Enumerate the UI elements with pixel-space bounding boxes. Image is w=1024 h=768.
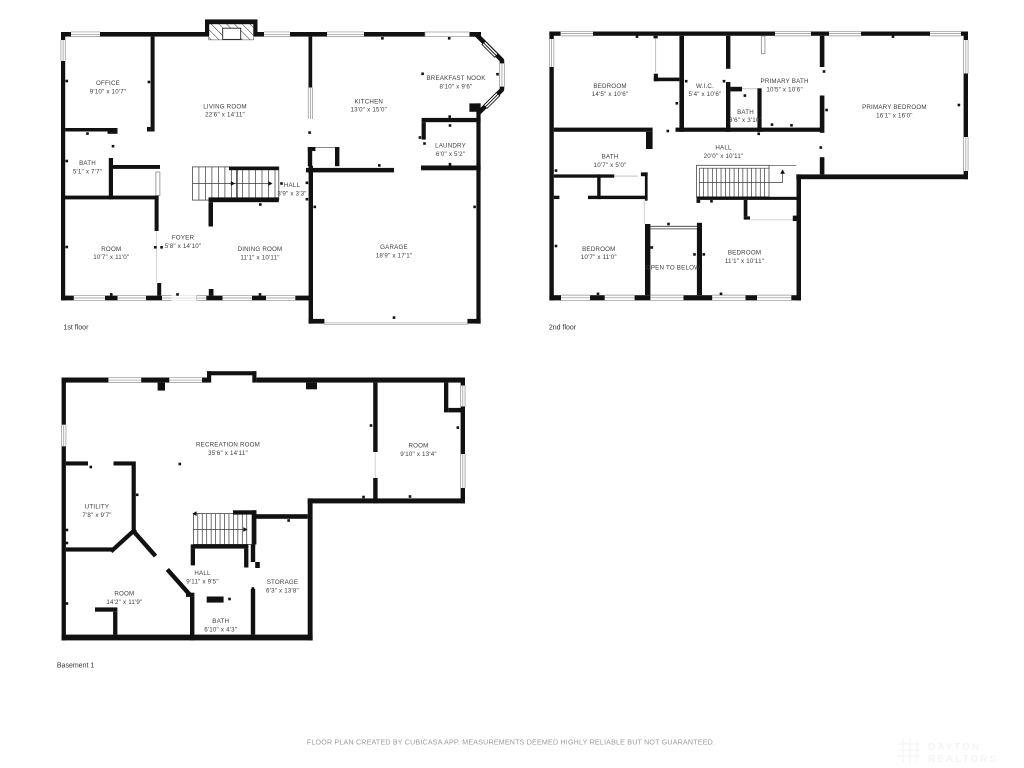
svg-text:FLOOR PLAN CREATED BY CUBICASA: FLOOR PLAN CREATED BY CUBICASA APP. MEAS… bbox=[307, 739, 715, 747]
svg-text:KITCHEN: KITCHEN bbox=[355, 98, 384, 105]
svg-text:ROOM: ROOM bbox=[408, 442, 428, 449]
svg-text:11'1" x 10'11": 11'1" x 10'11" bbox=[725, 258, 764, 265]
svg-text:HALL: HALL bbox=[284, 182, 301, 189]
svg-text:FOYER: FOYER bbox=[172, 234, 195, 241]
svg-text:STORAGE: STORAGE bbox=[267, 579, 299, 586]
svg-text:LIVING ROOM: LIVING ROOM bbox=[203, 103, 246, 110]
svg-text:7'8" x 9'7": 7'8" x 9'7" bbox=[82, 512, 111, 519]
svg-text:18'9" x 17'1": 18'9" x 17'1" bbox=[376, 253, 413, 260]
svg-text:PRIMARY BATH: PRIMARY BATH bbox=[761, 78, 809, 85]
svg-text:PRIMARY BEDROOM: PRIMARY BEDROOM bbox=[862, 104, 927, 111]
svg-text:3'9" x 3'3": 3'9" x 3'3" bbox=[277, 191, 306, 198]
svg-text:9'10" x 13'4": 9'10" x 13'4" bbox=[400, 451, 437, 458]
svg-text:6'0" x 5'2": 6'0" x 5'2" bbox=[436, 151, 465, 158]
svg-text:W.I.C.: W.I.C. bbox=[696, 83, 714, 90]
svg-text:BATH: BATH bbox=[79, 160, 96, 167]
svg-text:10'7" x 11'0": 10'7" x 11'0" bbox=[581, 254, 617, 261]
svg-text:14'2" x 11'9": 14'2" x 11'9" bbox=[106, 599, 142, 606]
svg-text:BEDROOM: BEDROOM bbox=[582, 246, 615, 253]
svg-text:11'1" x 10'11": 11'1" x 10'11" bbox=[240, 254, 279, 261]
svg-text:10'7" x 11'0": 10'7" x 11'0" bbox=[93, 254, 129, 261]
svg-text:OFFICE: OFFICE bbox=[96, 80, 120, 87]
svg-text:BATH: BATH bbox=[602, 153, 619, 160]
svg-text:9'11" x 9'5": 9'11" x 9'5" bbox=[186, 579, 218, 586]
svg-text:13'0" x 15'0": 13'0" x 15'0" bbox=[351, 107, 388, 114]
svg-text:14'5" x 10'6": 14'5" x 10'6" bbox=[592, 91, 629, 98]
svg-text:5'4" x 10'6": 5'4" x 10'6" bbox=[689, 91, 722, 98]
svg-text:BEDROOM: BEDROOM bbox=[728, 249, 761, 256]
svg-text:BATH: BATH bbox=[737, 109, 754, 116]
svg-text:22'6" x 14'11": 22'6" x 14'11" bbox=[205, 112, 245, 119]
svg-text:BEDROOM: BEDROOM bbox=[593, 83, 626, 90]
svg-text:HALL: HALL bbox=[715, 144, 732, 151]
svg-text:OPEN TO BELOW: OPEN TO BELOW bbox=[646, 264, 700, 271]
svg-text:DAYTON: DAYTON bbox=[928, 742, 981, 753]
svg-text:RECREATION ROOM: RECREATION ROOM bbox=[196, 442, 260, 449]
svg-text:BATH: BATH bbox=[212, 618, 229, 625]
svg-text:ROOM: ROOM bbox=[114, 590, 134, 597]
svg-text:8'10" x 9'6": 8'10" x 9'6" bbox=[440, 83, 473, 90]
svg-text:2nd floor: 2nd floor bbox=[549, 325, 577, 332]
svg-text:5'1" x 7'7": 5'1" x 7'7" bbox=[73, 169, 102, 176]
svg-text:10'5" x 10'6": 10'5" x 10'6" bbox=[766, 86, 803, 93]
svg-text:10'7" x 5'0": 10'7" x 5'0" bbox=[594, 162, 627, 169]
svg-text:GARAGE: GARAGE bbox=[380, 244, 408, 251]
svg-text:REALTORS: REALTORS bbox=[928, 754, 998, 765]
svg-text:DINING ROOM: DINING ROOM bbox=[238, 246, 283, 253]
svg-text:3'6" x 3'10": 3'6" x 3'10" bbox=[729, 117, 762, 124]
svg-text:9'10" x 10'7": 9'10" x 10'7" bbox=[90, 89, 127, 96]
svg-text:20'0" x 10'11": 20'0" x 10'11" bbox=[704, 153, 744, 160]
svg-text:6'3" x 13'8": 6'3" x 13'8" bbox=[266, 587, 299, 594]
svg-text:5'8" x 14'10": 5'8" x 14'10" bbox=[165, 243, 202, 250]
svg-text:UTILITY: UTILITY bbox=[85, 503, 109, 510]
svg-text:HALL: HALL bbox=[194, 570, 211, 577]
svg-text:6'10" x 4'3": 6'10" x 4'3" bbox=[204, 627, 237, 634]
svg-text:Basement 1: Basement 1 bbox=[57, 662, 94, 669]
svg-text:16'1" x 16'0": 16'1" x 16'0" bbox=[876, 113, 913, 120]
svg-text:1st floor: 1st floor bbox=[64, 325, 90, 332]
svg-text:35'6" x 14'11": 35'6" x 14'11" bbox=[208, 450, 248, 457]
svg-text:BREAKFAST NOOK: BREAKFAST NOOK bbox=[426, 75, 486, 82]
svg-text:LAUNDRY: LAUNDRY bbox=[435, 142, 466, 149]
svg-text:ROOM: ROOM bbox=[101, 246, 121, 253]
